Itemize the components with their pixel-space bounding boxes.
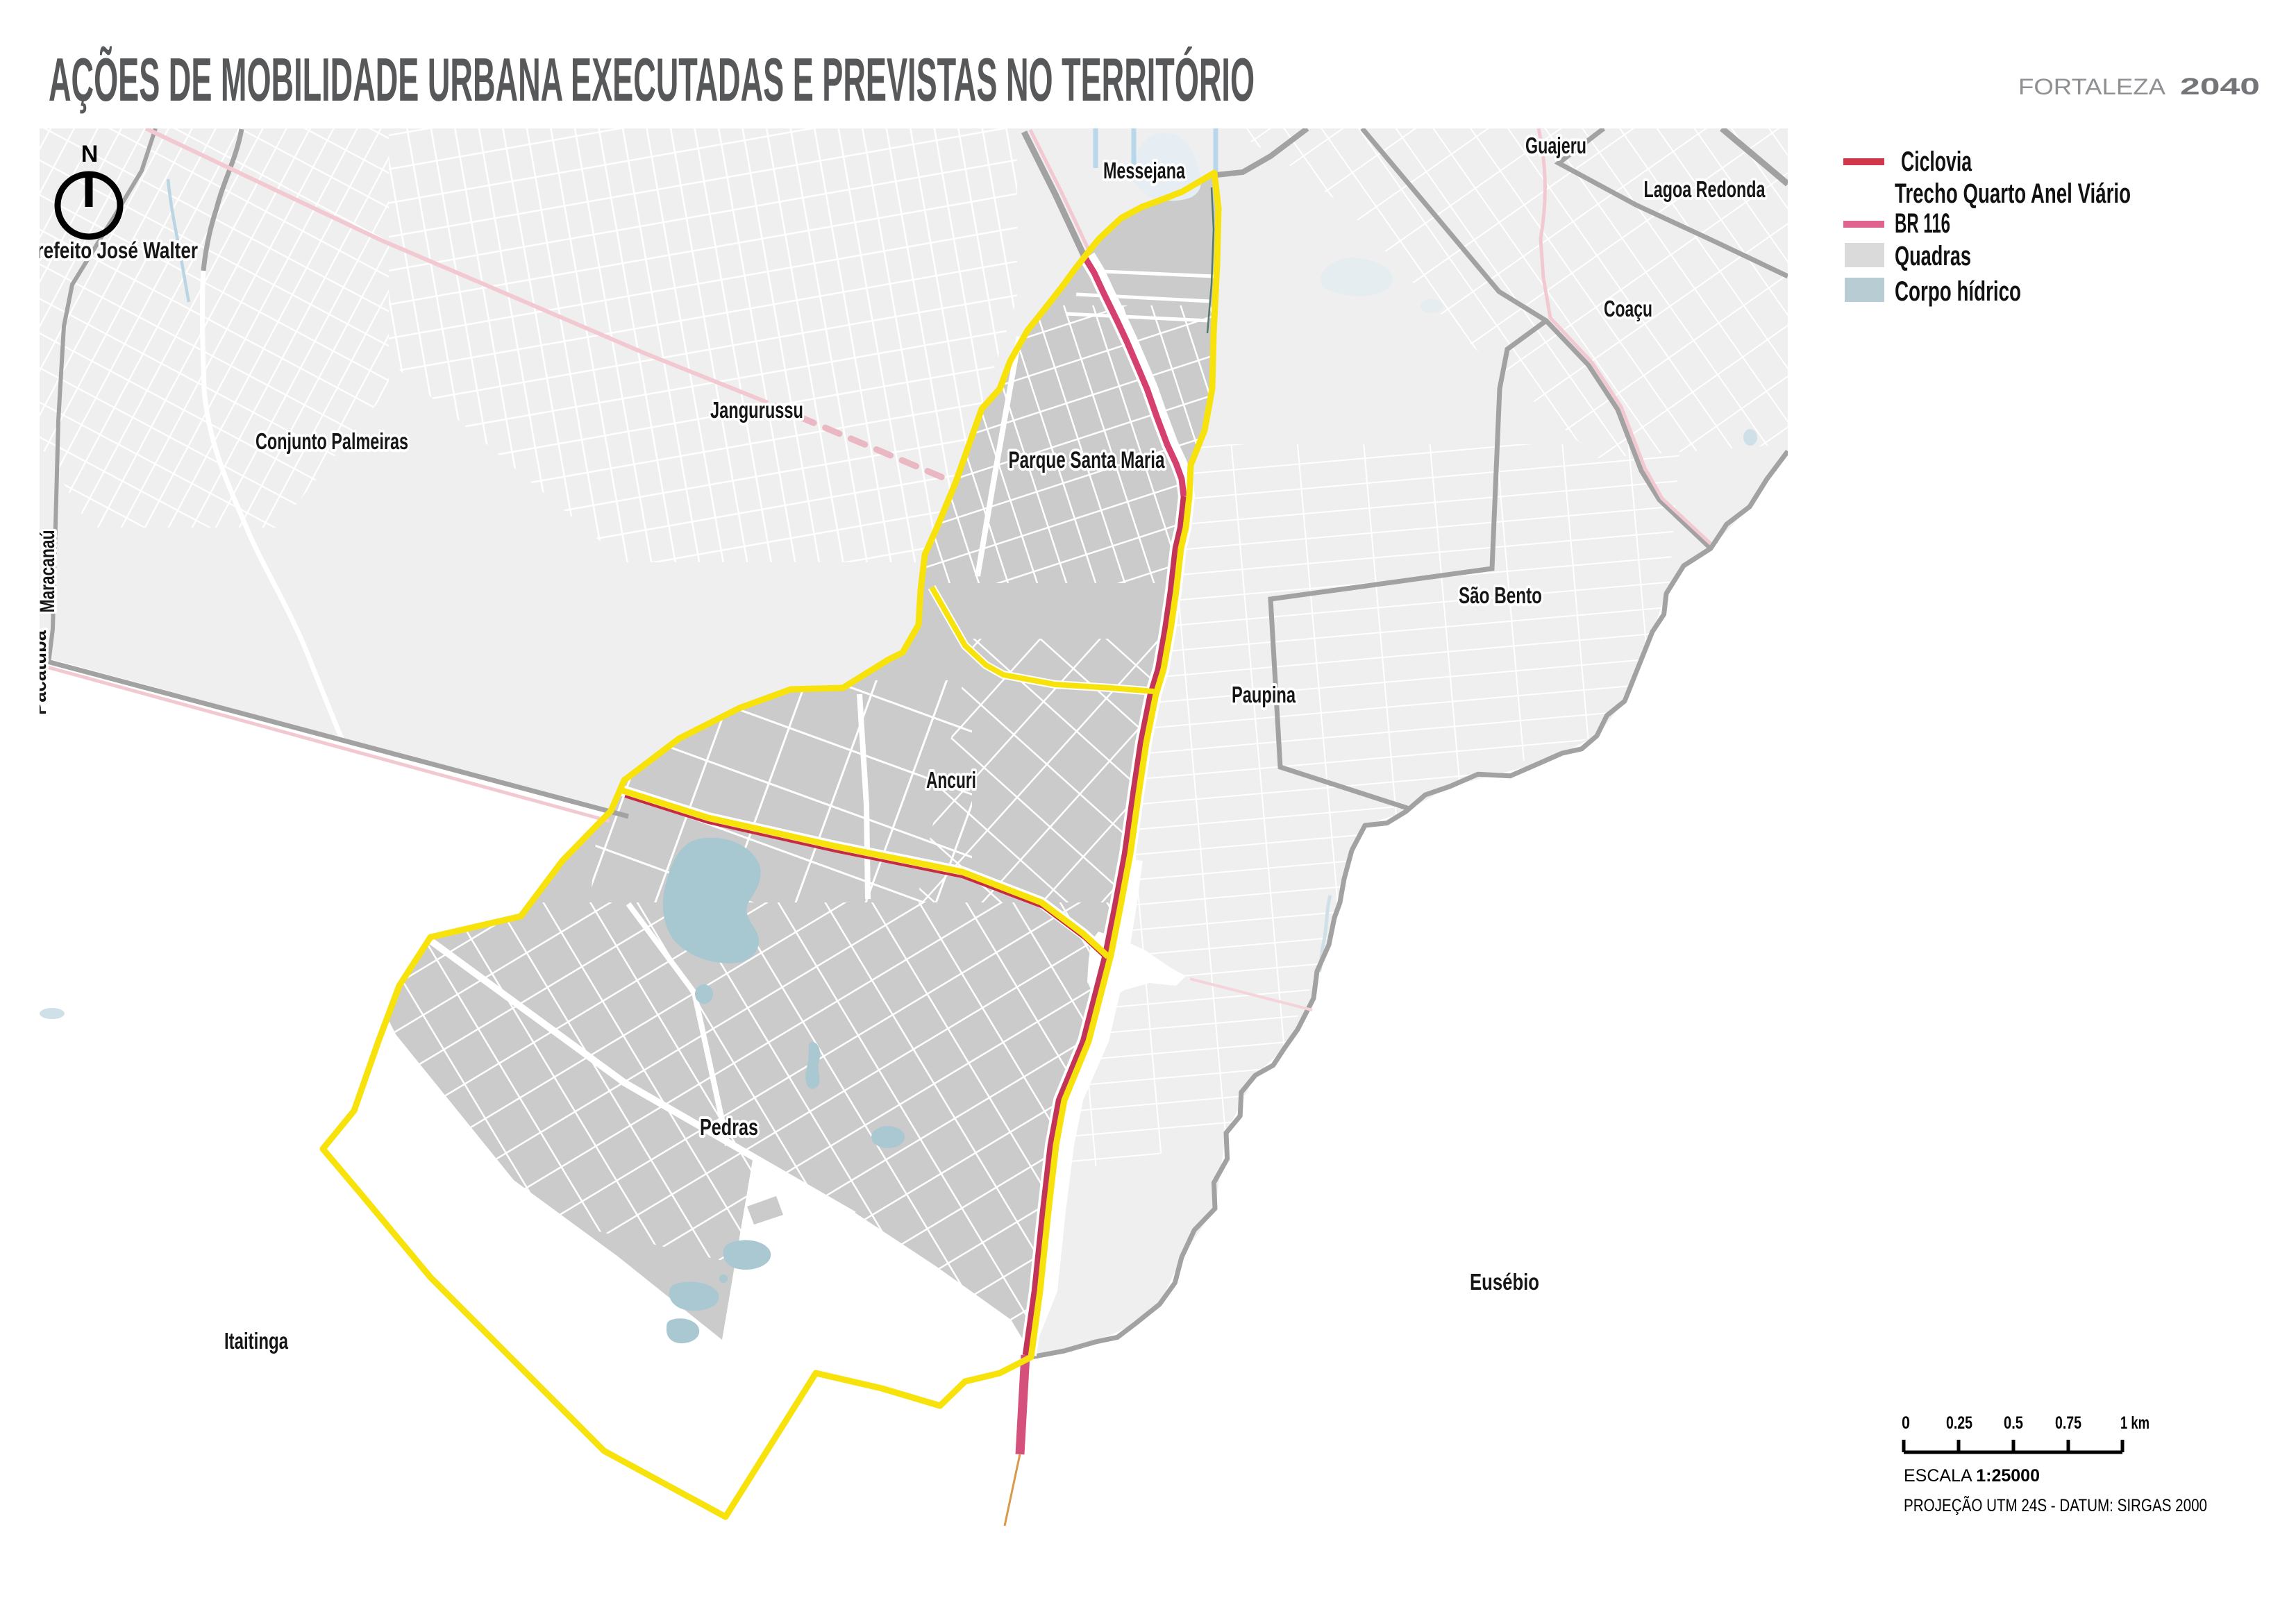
svg-text:BR 116: BR 116 bbox=[1895, 208, 1950, 239]
svg-text:PROJEÇÃO UTM 24S - DATUM: SIRG: PROJEÇÃO UTM 24S - DATUM: SIRGAS 2000 bbox=[1904, 1495, 2207, 1515]
svg-text:Paupina: Paupina bbox=[1232, 682, 1296, 707]
svg-text:0.25: 0.25 bbox=[1946, 1413, 1972, 1433]
svg-text:Itaitinga: Itaitinga bbox=[224, 1328, 288, 1354]
svg-text:Prefeito José Walter: Prefeito José Walter bbox=[24, 237, 198, 263]
svg-text:2040: 2040 bbox=[2180, 74, 2260, 100]
svg-text:1 km: 1 km bbox=[2120, 1413, 2150, 1433]
svg-text:Jangurussu: Jangurussu bbox=[710, 397, 803, 423]
svg-text:Ciclovia: Ciclovia bbox=[1901, 146, 1972, 177]
svg-text:Trecho Quarto Anel Viário: Trecho Quarto Anel Viário bbox=[1895, 178, 2131, 209]
svg-text:0: 0 bbox=[1902, 1413, 1910, 1433]
svg-text:Parque Santa Maria: Parque Santa Maria bbox=[1009, 447, 1166, 473]
svg-text:ESCALA 1:25000: ESCALA 1:25000 bbox=[1904, 1466, 2040, 1486]
svg-text:Pedras: Pedras bbox=[700, 1114, 758, 1140]
svg-text:FORTALEZA: FORTALEZA bbox=[2018, 74, 2166, 99]
svg-text:Corpo hídrico: Corpo hídrico bbox=[1895, 276, 2021, 307]
svg-text:São Bento: São Bento bbox=[1459, 582, 1542, 608]
svg-text:0.5: 0.5 bbox=[2004, 1413, 2023, 1433]
svg-text:AÇÕES DE MOBILIDADE URBANA EXE: AÇÕES DE MOBILIDADE URBANA EXECUTADAS E … bbox=[49, 45, 1255, 114]
svg-text:Quadras: Quadras bbox=[1895, 241, 1971, 271]
svg-text:Guajeru: Guajeru bbox=[1525, 133, 1586, 158]
svg-text:Conjunto Palmeiras: Conjunto Palmeiras bbox=[255, 428, 408, 454]
svg-text:Messejana: Messejana bbox=[1103, 158, 1185, 183]
svg-text:0.75: 0.75 bbox=[2055, 1413, 2081, 1433]
svg-text:Ancuri: Ancuri bbox=[926, 767, 976, 793]
svg-text:Eusébio: Eusébio bbox=[1470, 1269, 1539, 1295]
svg-text:Lagoa Redonda: Lagoa Redonda bbox=[1644, 176, 1766, 202]
svg-text:N: N bbox=[81, 141, 99, 167]
svg-text:Coaçu: Coaçu bbox=[1604, 296, 1652, 321]
